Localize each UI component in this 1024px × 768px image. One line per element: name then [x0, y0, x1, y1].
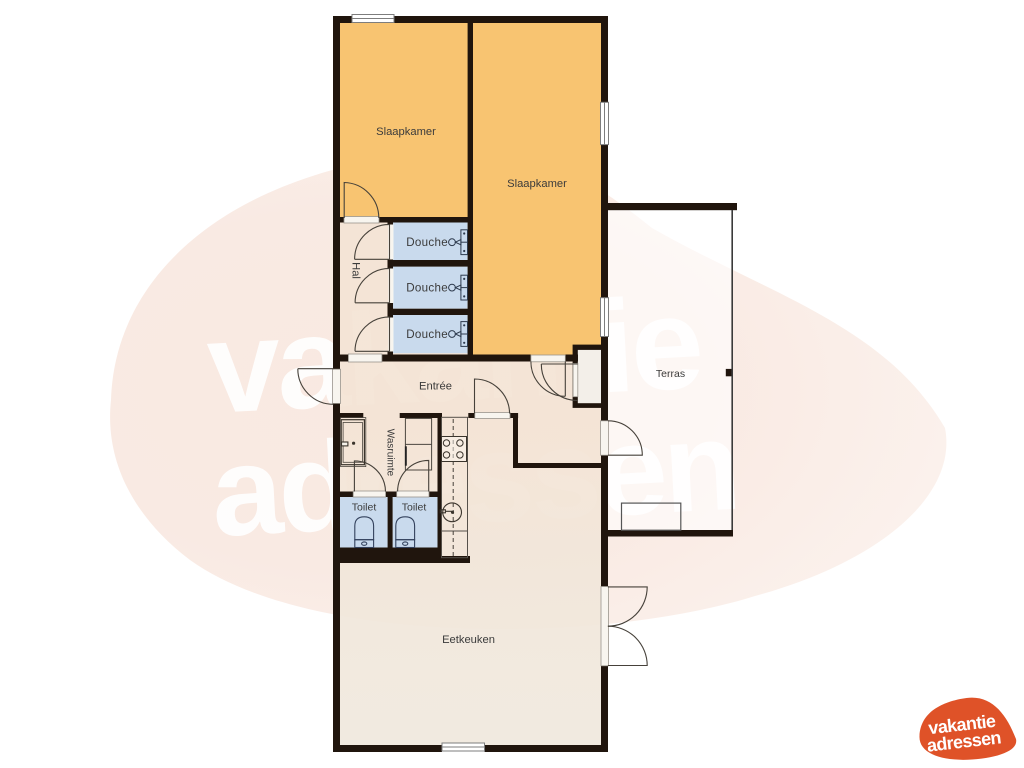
- svg-text:Toilet: Toilet: [402, 502, 427, 514]
- svg-text:Entrée: Entrée: [419, 381, 452, 393]
- svg-text:Slaapkamer: Slaapkamer: [376, 126, 436, 138]
- svg-text:Douche: Douche: [406, 282, 448, 295]
- svg-text:Douche: Douche: [406, 328, 448, 341]
- svg-text:Terras: Terras: [656, 368, 685, 380]
- svg-text:Douche: Douche: [406, 236, 448, 249]
- svg-text:Hal: Hal: [350, 262, 362, 279]
- svg-text:Eetkeuken: Eetkeuken: [442, 634, 495, 646]
- svg-text:Toilet: Toilet: [352, 502, 377, 514]
- svg-text:Slaapkamer: Slaapkamer: [507, 178, 567, 190]
- svg-text:Wasruimte: Wasruimte: [385, 429, 396, 477]
